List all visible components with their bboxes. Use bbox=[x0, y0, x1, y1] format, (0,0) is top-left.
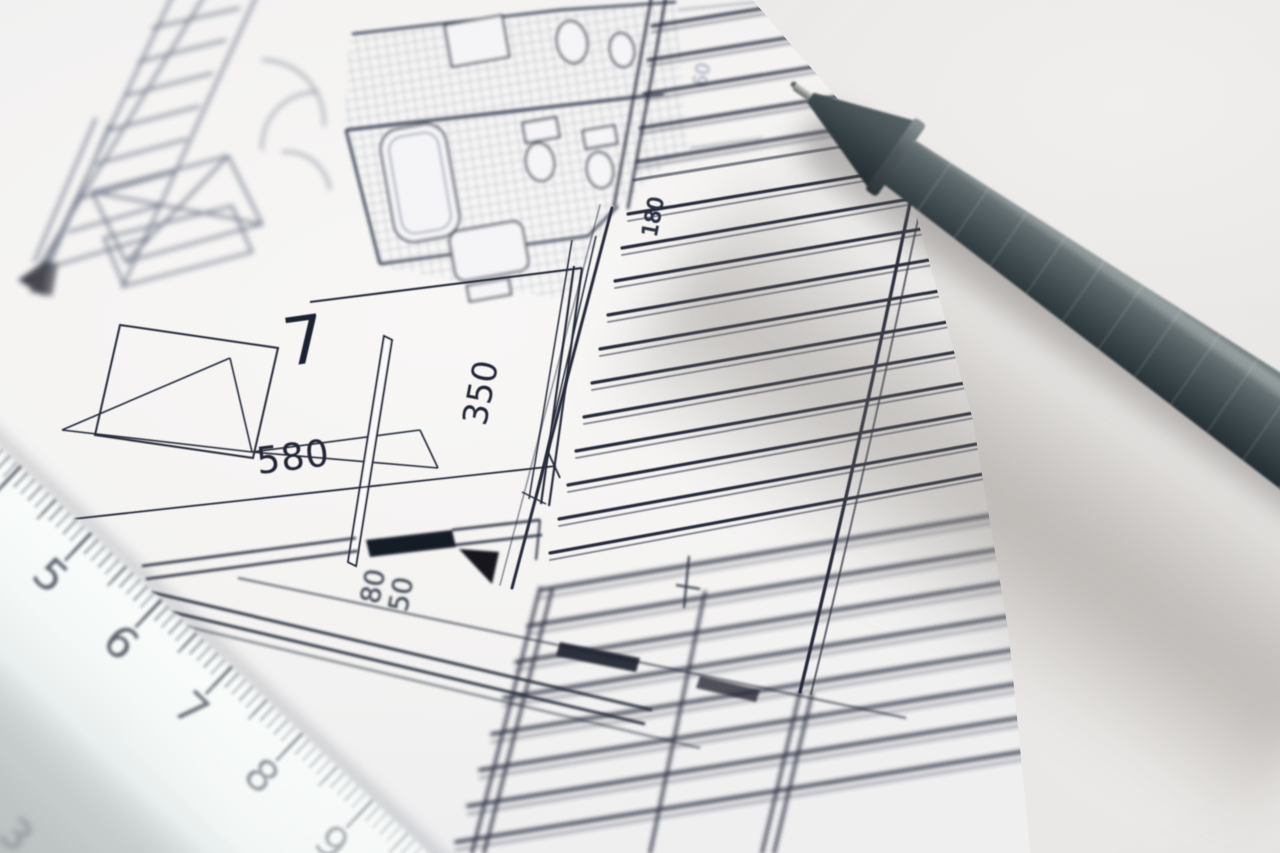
room-number-label: 7 bbox=[278, 300, 330, 382]
stairs-drawing bbox=[18, 0, 330, 296]
partition bbox=[348, 336, 392, 566]
dim-50-label: 50 bbox=[383, 575, 420, 615]
dim-180-label: 180 bbox=[638, 195, 669, 239]
door-leaf bbox=[459, 549, 499, 584]
photo: 60 7 580 350 bbox=[0, 0, 1280, 853]
cabinet bbox=[445, 15, 509, 66]
dim-580-label: 580 bbox=[254, 431, 332, 483]
bed bbox=[95, 325, 278, 458]
dim-350-label: 350 bbox=[455, 357, 507, 428]
